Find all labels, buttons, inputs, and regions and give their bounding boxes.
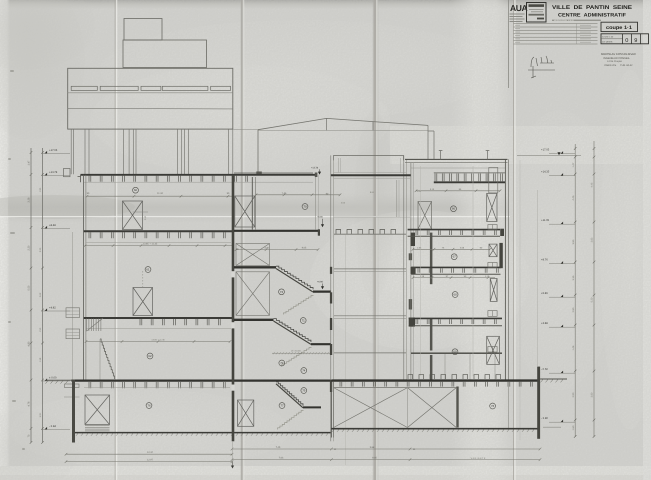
svg-text:+9.98: +9.98 <box>317 216 323 219</box>
svg-text:13.85 + 11.35: 13.85 + 11.35 <box>151 339 165 342</box>
svg-text:± 0.00: ± 0.00 <box>49 376 57 379</box>
svg-text:+14.35: +14.35 <box>541 171 550 174</box>
svg-text:73: 73 <box>280 290 284 294</box>
svg-text:3.35: 3.35 <box>572 275 575 280</box>
svg-text:7.45: 7.45 <box>276 446 281 449</box>
svg-text:PARIS 20e TUR. 60-42: PARIS 20e TUR. 60-42 <box>605 64 634 67</box>
svg-text:77: 77 <box>280 404 284 408</box>
svg-text:- 3.80: - 3.80 <box>541 417 548 420</box>
svg-text:2.90: 2.90 <box>572 392 575 397</box>
svg-text:echelle 1:50: echelle 1:50 <box>602 35 614 38</box>
svg-text:74: 74 <box>302 369 306 373</box>
svg-text:2.20: 2.20 <box>39 247 42 252</box>
svg-text:MIROSLAV KOSTANJEVAC: MIROSLAV KOSTANJEVAC <box>601 52 636 56</box>
svg-text:5.20: 5.20 <box>591 297 594 302</box>
svg-text:1er DEVIS: 1er DEVIS <box>602 41 613 44</box>
svg-text:61: 61 <box>146 268 150 272</box>
svg-text:- 0.50: - 0.50 <box>541 368 548 371</box>
svg-text:+6.98: +6.98 <box>317 280 324 283</box>
svg-text:9.81: 9.81 <box>39 412 42 417</box>
svg-text:3.40: 3.40 <box>264 247 269 250</box>
svg-text:12.97: 12.97 <box>147 459 154 462</box>
svg-text:MODIFICATION 2.11.65: MODIFICATION 2.11.65 <box>554 19 574 22</box>
svg-text:78: 78 <box>491 404 495 408</box>
svg-text:66: 66 <box>452 207 456 211</box>
svg-text:1.47: 1.47 <box>28 160 31 165</box>
svg-text:- 3.84: - 3.84 <box>49 425 56 428</box>
svg-text:7.63: 7.63 <box>279 457 284 460</box>
svg-text:4.76: 4.76 <box>28 401 31 406</box>
svg-text:+8.48: +8.48 <box>49 224 56 227</box>
svg-text:VILLE DE PANTIN SEINE: VILLE DE PANTIN SEINE <box>552 5 632 11</box>
svg-text:+11.05: +11.05 <box>541 219 550 222</box>
svg-text:6 Cité Chaptal: 6 Cité Chaptal <box>607 60 622 63</box>
svg-text:AUA: AUA <box>510 3 527 13</box>
svg-text:76: 76 <box>147 404 151 408</box>
svg-text:+2.88: +2.88 <box>541 322 548 325</box>
svg-text:1.48: 1.48 <box>572 345 575 350</box>
svg-text:67: 67 <box>453 255 457 259</box>
svg-text:1.98: 1.98 <box>39 357 42 362</box>
svg-text:70: 70 <box>303 205 307 209</box>
svg-text:4.80: 4.80 <box>28 341 31 346</box>
svg-text:72: 72 <box>280 361 284 365</box>
svg-text:4.45: 4.45 <box>591 182 594 187</box>
svg-text:INGENIEUR CONSEIL: INGENIEUR CONSEIL <box>603 57 630 60</box>
svg-text:2.20: 2.20 <box>28 245 31 250</box>
svg-text:4.45: 4.45 <box>572 195 575 200</box>
svg-text:CENTRE ADMINISTRATIF: CENTRE ADMINISTRATIF <box>558 12 626 18</box>
svg-text:+4.82: +4.82 <box>49 306 56 309</box>
svg-text:+8.76: +8.76 <box>541 259 548 262</box>
svg-text:75: 75 <box>302 389 306 393</box>
svg-text:62: 62 <box>148 354 152 358</box>
svg-text:5.50: 5.50 <box>28 285 31 290</box>
svg-text:3.80: 3.80 <box>591 392 594 397</box>
svg-text:+5.86: +5.86 <box>541 292 548 295</box>
svg-text:69: 69 <box>453 350 457 354</box>
svg-text:+17.05: +17.05 <box>541 149 550 152</box>
svg-text:9.05: 9.05 <box>302 247 307 250</box>
svg-text:3.62: 3.62 <box>39 292 42 297</box>
svg-text:71: 71 <box>302 319 306 323</box>
svg-text:+17.06: +17.06 <box>49 149 58 152</box>
svg-text:+13.78: +13.78 <box>311 166 319 169</box>
svg-text:11.32: 11.32 <box>157 192 163 195</box>
svg-text:3.83: 3.83 <box>591 237 594 242</box>
svg-text:12.37: 12.37 <box>147 451 154 454</box>
svg-text:13.85 + 11.35: 13.85 + 11.35 <box>143 243 158 246</box>
svg-text:3.28: 3.28 <box>28 197 31 202</box>
svg-text:1.80: 1.80 <box>39 187 42 192</box>
svg-text:V A R I A N T E: V A R I A N T E <box>471 457 486 460</box>
svg-text:68: 68 <box>453 293 457 297</box>
svg-text:3.83: 3.83 <box>572 239 575 244</box>
svg-text:0: 0 <box>625 38 628 44</box>
svg-text:1.47: 1.47 <box>572 162 575 167</box>
svg-text:Ø +20.000: Ø +20.000 <box>291 350 301 353</box>
svg-text:coupe 1·1: coupe 1·1 <box>606 25 632 31</box>
svg-text:60: 60 <box>134 188 138 192</box>
svg-text:+13.78: +13.78 <box>49 171 58 174</box>
svg-text:7.45: 7.45 <box>282 192 287 195</box>
svg-text:5.88: 5.88 <box>370 446 375 449</box>
svg-text:2.80: 2.80 <box>572 307 575 312</box>
svg-text:9: 9 <box>634 38 637 44</box>
svg-text:9.05: 9.05 <box>372 457 377 460</box>
svg-text:1.50: 1.50 <box>39 327 42 332</box>
svg-text:1.60: 1.60 <box>572 425 575 430</box>
